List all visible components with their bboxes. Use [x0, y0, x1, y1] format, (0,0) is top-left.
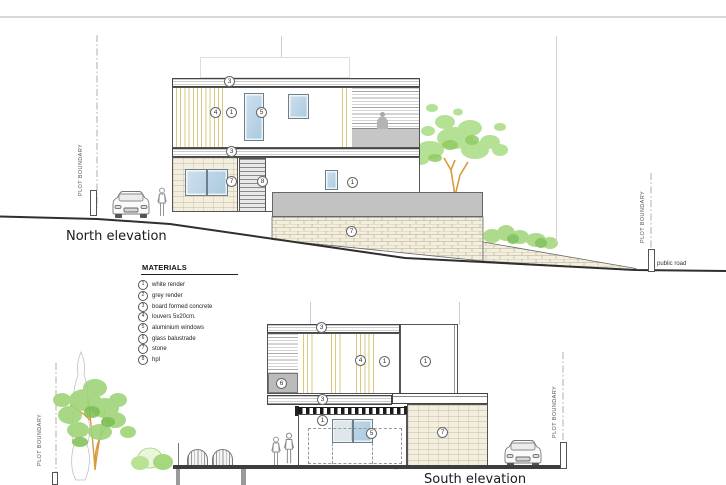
south-right-roof-band — [392, 393, 488, 404]
material-num: 6 — [138, 334, 148, 344]
north-ref-line-right — [556, 36, 557, 243]
callout-s-floor-concrete: 3 — [317, 394, 328, 405]
south-hidden-line-1 — [332, 443, 333, 464]
south-louver-group-2 — [331, 334, 343, 393]
material-num: 3 — [138, 302, 148, 312]
south-hidden-line-2 — [372, 443, 373, 464]
material-label: hpl — [152, 357, 160, 363]
north-upper-small-window — [288, 94, 309, 119]
callout-s-alu-window: 5 — [366, 428, 377, 439]
south-car-graphic — [505, 441, 541, 468]
elevation-drawing-sheet: PLOT BOUNDARY PLOT BOUNDARY public road … — [0, 0, 726, 485]
north-roof-bulkhead — [200, 57, 350, 78]
material-num: 4 — [138, 312, 148, 322]
north-car-graphic — [113, 192, 149, 219]
callout-white-render-2: 1 — [347, 177, 358, 188]
south-right-volume-joint — [454, 325, 455, 393]
callout-s-white-render: 1 — [379, 356, 390, 367]
north-balcony-figure-body — [377, 117, 388, 129]
callout-s-balustrade: 6 — [276, 378, 287, 389]
callout-roof-concrete: 3 — [224, 76, 235, 87]
north-ground-small-window — [325, 170, 338, 190]
material-item: 8hpl — [138, 355, 212, 366]
south-hidden-outline — [308, 428, 402, 464]
materials-legend: 1white render 2grey render 3board formed… — [138, 280, 212, 366]
callout-s-white-render-3: 1 — [317, 415, 328, 426]
material-num: 2 — [138, 291, 148, 301]
north-tree — [410, 104, 508, 196]
public-road-label: public road — [657, 261, 686, 267]
north-stone-retaining-walls — [272, 217, 636, 270]
callout-s-stone: 7 — [437, 427, 448, 438]
material-item: 2grey render — [138, 291, 212, 302]
south-elevation-title: South elevation — [424, 472, 526, 485]
south-boundary-post-left — [52, 472, 58, 485]
material-num: 7 — [138, 344, 148, 354]
material-item: 5aluminium windows — [138, 323, 212, 334]
material-num: 1 — [138, 280, 148, 290]
material-label: louvers 5x20cm. — [152, 314, 196, 320]
north-site-parapet-wall — [272, 192, 483, 217]
north-person-graphic — [158, 188, 166, 216]
south-plot-boundary-left-label: PLOT BOUNDARY — [37, 414, 43, 466]
material-item: 6glass balustrade — [138, 333, 212, 344]
south-deck-support-2 — [241, 469, 246, 485]
callout-retaining-stone: 7 — [346, 226, 357, 237]
north-roof-slab — [172, 78, 420, 87]
south-tree — [53, 379, 136, 470]
south-boundary-post-right — [560, 442, 567, 469]
south-roof-slab — [267, 324, 400, 333]
sheet-border-line — [0, 16, 726, 18]
callout-s-louvers: 4 — [355, 355, 366, 366]
material-label: white render — [152, 282, 185, 288]
south-person-graphic — [272, 437, 280, 465]
material-item: 4louvers 5x20cm. — [138, 312, 212, 323]
callout-s-white-render-2: 1 — [420, 356, 431, 367]
south-person-graphic-2 — [284, 433, 293, 463]
south-plot-boundary-right-label: PLOT BOUNDARY — [552, 386, 558, 438]
material-label: board formed concrete — [152, 304, 212, 310]
callout-floor-concrete: 3 — [226, 146, 237, 157]
material-item: 3board formed concrete — [138, 301, 212, 312]
south-right-roof-band-line — [393, 396, 487, 397]
south-deck-support-1 — [176, 469, 180, 485]
material-num: 8 — [138, 355, 148, 365]
north-ground-window-mullion — [206, 170, 208, 195]
north-louver-strip-right — [342, 88, 350, 147]
south-deck-slab — [173, 465, 567, 469]
south-stone-volume — [407, 404, 488, 466]
north-balcony-parapet — [352, 128, 419, 147]
material-item: 7stone — [138, 344, 212, 355]
callout-white-render: 1 — [226, 107, 237, 118]
north-floor-slab — [172, 148, 420, 157]
south-ref-line-right — [459, 302, 460, 325]
south-planter-dome-2 — [212, 449, 233, 465]
south-louver-group-1 — [303, 334, 313, 393]
callout-alu-window: 5 — [256, 107, 267, 118]
material-label: stone — [152, 346, 167, 352]
material-item: 1white render — [138, 280, 212, 291]
materials-title-underline — [141, 274, 238, 275]
north-plot-boundary-right-label: PLOT BOUNDARY — [640, 191, 646, 243]
material-label: grey render — [152, 293, 183, 299]
south-deck-pole — [178, 443, 179, 465]
south-hatch-panel — [268, 334, 298, 373]
materials-title: MATERIALS — [142, 263, 187, 272]
callout-stone-wall: 7 — [226, 176, 237, 187]
north-elevation-title: North elevation — [66, 229, 167, 244]
material-num: 5 — [138, 323, 148, 333]
north-boundary-post-left — [90, 190, 97, 216]
material-label: glass balustrade — [152, 336, 196, 342]
callout-s-roof-concrete: 3 — [316, 322, 327, 333]
north-boundary-post-right — [648, 249, 655, 272]
callout-louvers: 4 — [210, 107, 221, 118]
south-ref-line-left — [310, 302, 311, 325]
callout-hpl-door: 8 — [257, 176, 268, 187]
north-plot-boundary-left-label: PLOT BOUNDARY — [78, 144, 84, 196]
material-label: aluminium windows — [152, 325, 204, 331]
south-floor-slab — [267, 395, 392, 405]
south-planter-dome-1 — [187, 449, 208, 465]
